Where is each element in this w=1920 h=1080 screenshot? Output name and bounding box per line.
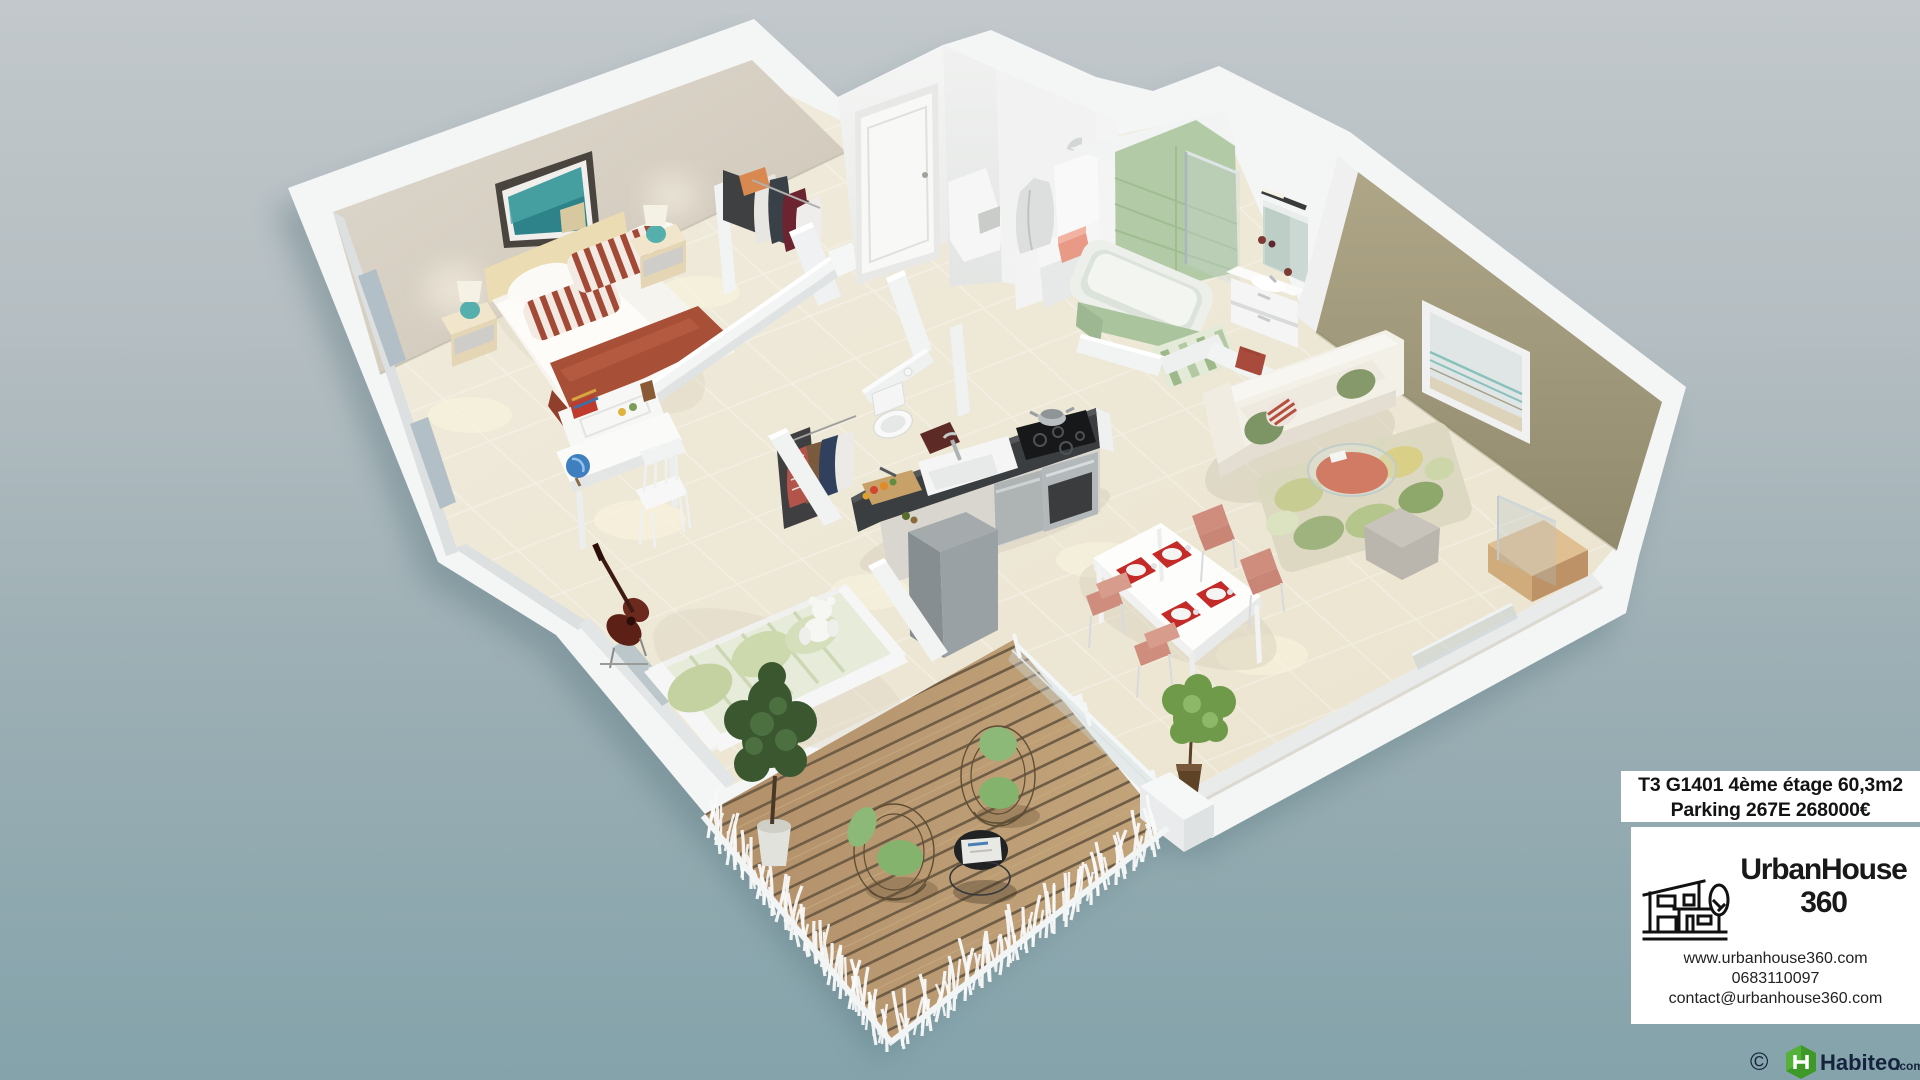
svg-text:©: © [1750, 1048, 1769, 1076]
svg-text:Habiteo: Habiteo [1820, 1050, 1901, 1075]
svg-text:.com: .com [1896, 1059, 1920, 1073]
